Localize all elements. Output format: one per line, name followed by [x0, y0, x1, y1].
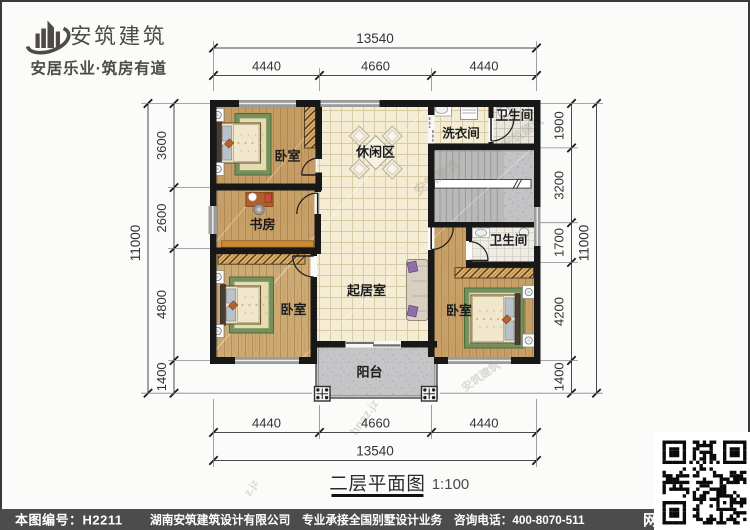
svg-text:起居室: 起居室: [346, 283, 386, 298]
svg-text:阳台: 阳台: [356, 365, 382, 380]
svg-text:卧室: 卧室: [446, 303, 472, 318]
svg-text:1700: 1700: [552, 228, 567, 257]
svg-text:卫生间: 卫生间: [490, 233, 528, 248]
svg-text:11000: 11000: [128, 225, 143, 262]
svg-text:3200: 3200: [552, 171, 567, 200]
svg-text:卫生间: 卫生间: [496, 108, 534, 123]
svg-text:2600: 2600: [154, 204, 169, 233]
svg-text:二层平面图: 二层平面图: [329, 473, 426, 494]
svg-text:4440: 4440: [470, 59, 499, 74]
svg-text:卧室: 卧室: [280, 302, 306, 317]
svg-text:1900: 1900: [552, 111, 567, 140]
svg-text:安筑建筑: 安筑建筑: [70, 25, 167, 49]
svg-text:4660: 4660: [361, 59, 390, 74]
svg-text:休闲区: 休闲区: [355, 145, 395, 160]
svg-text:洗衣间: 洗衣间: [442, 126, 480, 141]
svg-text:本图编号：H2211: 本图编号：H2211: [15, 513, 123, 528]
svg-text:4200: 4200: [552, 297, 567, 326]
svg-text:安居乐业·筑房有道: 安居乐业·筑房有道: [31, 59, 167, 78]
svg-text:4800: 4800: [154, 290, 169, 319]
svg-text:13540: 13540: [356, 31, 394, 46]
svg-text:湖南安筑建筑设计有限公司 专业承接全国别墅设计业务 咨询电话: 湖南安筑建筑设计有限公司 专业承接全国别墅设计业务 咨询电话：400-8070-…: [150, 513, 585, 527]
svg-text:1400: 1400: [154, 362, 169, 391]
svg-text:4440: 4440: [470, 416, 499, 431]
svg-text:卧室: 卧室: [274, 149, 300, 164]
svg-text:3600: 3600: [154, 131, 169, 160]
svg-text:z.jz: z.jz: [242, 477, 261, 498]
svg-text:11000: 11000: [577, 225, 592, 262]
svg-text:1:100: 1:100: [432, 476, 470, 493]
svg-text:书房: 书房: [249, 217, 275, 232]
svg-text:4440: 4440: [252, 59, 281, 74]
svg-text:4440: 4440: [252, 416, 281, 431]
svg-text:13540: 13540: [356, 444, 394, 459]
svg-text:4660: 4660: [361, 416, 390, 431]
svg-text:1400: 1400: [552, 362, 567, 391]
